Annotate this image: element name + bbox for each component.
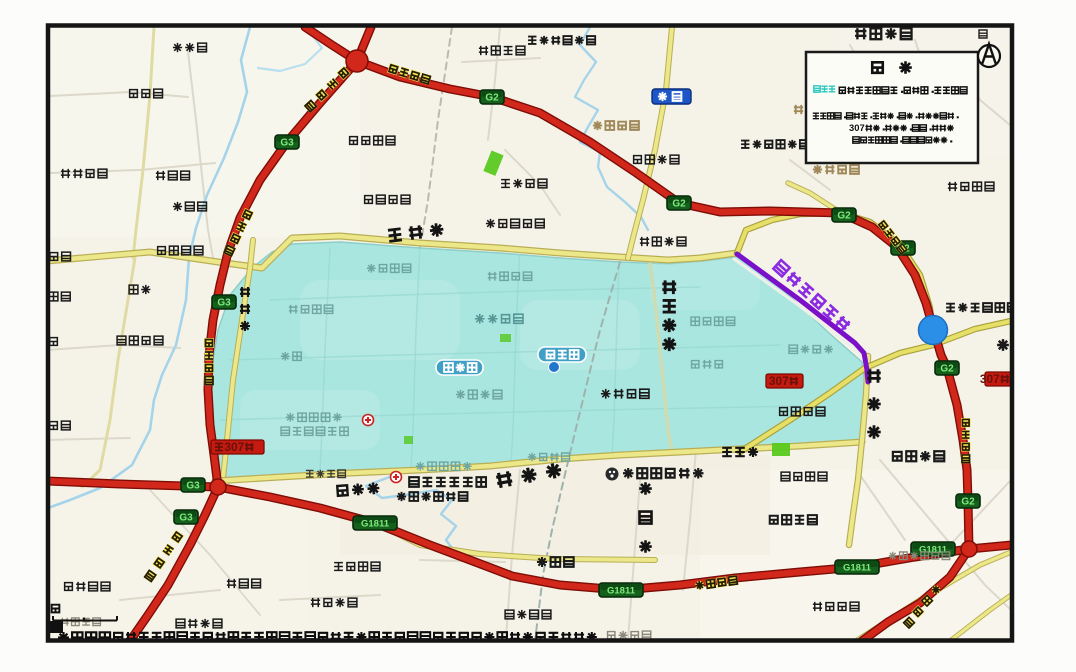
svg-text:7: 7 <box>238 440 245 454</box>
svg-text:G2: G2 <box>672 199 686 210</box>
svg-text:7: 7 <box>993 372 1000 386</box>
svg-text:G1811: G1811 <box>607 586 636 597</box>
svg-text:7: 7 <box>859 122 864 133</box>
svg-text:G2: G2 <box>961 497 975 508</box>
svg-text:G2: G2 <box>485 93 499 104</box>
svg-text:G3: G3 <box>179 513 193 524</box>
svg-text:G3: G3 <box>280 138 294 149</box>
svg-text:G3: G3 <box>217 298 231 309</box>
svg-text:G1811: G1811 <box>919 545 948 556</box>
svg-text:G2: G2 <box>940 364 954 375</box>
svg-text:7: 7 <box>782 374 789 388</box>
svg-text:G3: G3 <box>186 481 200 492</box>
svg-text:G1811: G1811 <box>361 519 390 530</box>
svg-text:G1811: G1811 <box>843 563 872 574</box>
svg-text:G2: G2 <box>837 211 851 222</box>
